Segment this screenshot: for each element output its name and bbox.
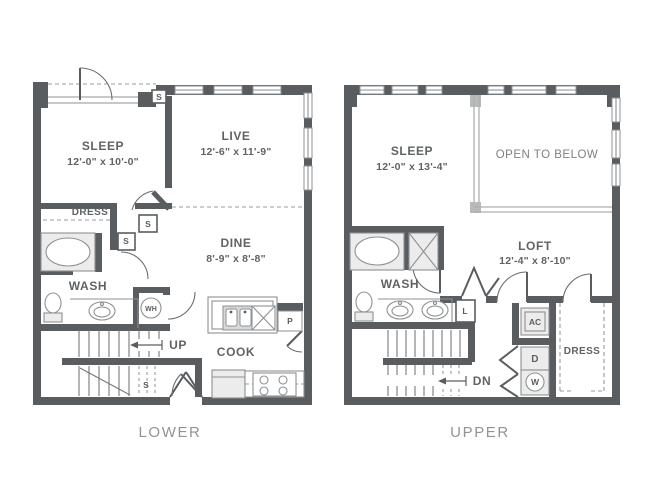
sink-faucet [100,302,103,305]
upper-caption: UPPER [450,424,510,441]
sleep-room-label: SLEEP [82,139,124,153]
hall-door-swing [497,272,527,302]
pantry-door-swing [287,346,302,352]
storage-label-2: S [123,236,129,246]
lower-windows [48,86,312,190]
dryer-label: D [531,354,539,365]
wash-label: WASH [69,279,107,293]
ac-label: AC [529,317,541,327]
floorplan-page: S SLEEP 12'-0" x 10'-0" LIVE 12'-6" x 11… [0,0,650,490]
refrigerator [212,370,245,398]
sleep-room-label: SLEEP [391,144,433,158]
lower-plan: S SLEEP 12'-0" x 10'-0" LIVE 12'-6" x 11… [33,68,312,441]
stove [253,373,296,396]
wh-door-swing [168,292,195,319]
sleep-room-dims: 12'-0" x 10'-0" [67,156,139,168]
bath-door-swing [121,252,148,279]
storage-label-1: S [145,219,151,229]
sleep-room-dims: 12'-0" x 13'-4" [376,161,448,173]
wash-label: WASH [381,277,419,291]
lower-caption: LOWER [138,424,201,441]
open-to-below-label: OPEN TO BELOW [496,149,599,161]
water-heater-label: WH [145,306,157,313]
dn-label: DN [473,374,492,388]
loft-entry-bifold [462,268,486,296]
up-label: UP [169,338,187,352]
dress-door-swing [563,274,591,302]
dress-label: DRESS [564,346,600,357]
toilet-tank [44,313,62,322]
dine-room-dims: 8'-9" x 8'-8" [206,253,266,265]
cook-label: COOK [217,345,255,359]
toilet-bowl [45,293,61,313]
live-room-label: LIVE [221,129,250,143]
storage-label-entry: S [156,92,162,102]
bathtub-basin [46,238,90,266]
laundry-bifold-top [500,346,518,374]
pantry-door-leaf [287,331,302,346]
loft-room-label: LOFT [518,239,552,253]
pantry-label: P [287,316,293,326]
live-room-dims: 12'-6" x 11'-9" [200,146,271,158]
upper-plan: SLEEP 12'-0" x 13'-4" OPEN TO BELOW WASH… [344,85,620,441]
floorplan-canvas: S SLEEP 12'-0" x 10'-0" LIVE 12'-6" x 11… [0,0,650,490]
dress-label: DRESS [72,207,108,218]
toilet-bowl [356,292,372,312]
loft-entry-leaf [486,278,499,296]
bathtub-basin [355,237,399,265]
storage-label-stairs: S [143,380,149,390]
toilet-tank [355,312,373,321]
dine-room-label: DINE [220,236,251,250]
washer-label: W [531,377,540,387]
loft-room-dims: 12'-4" x 8'-10" [499,255,571,267]
upper-stairs[interactable] [383,330,472,396]
laundry-bifold-bottom [501,374,518,397]
linen-label: L [462,306,467,316]
